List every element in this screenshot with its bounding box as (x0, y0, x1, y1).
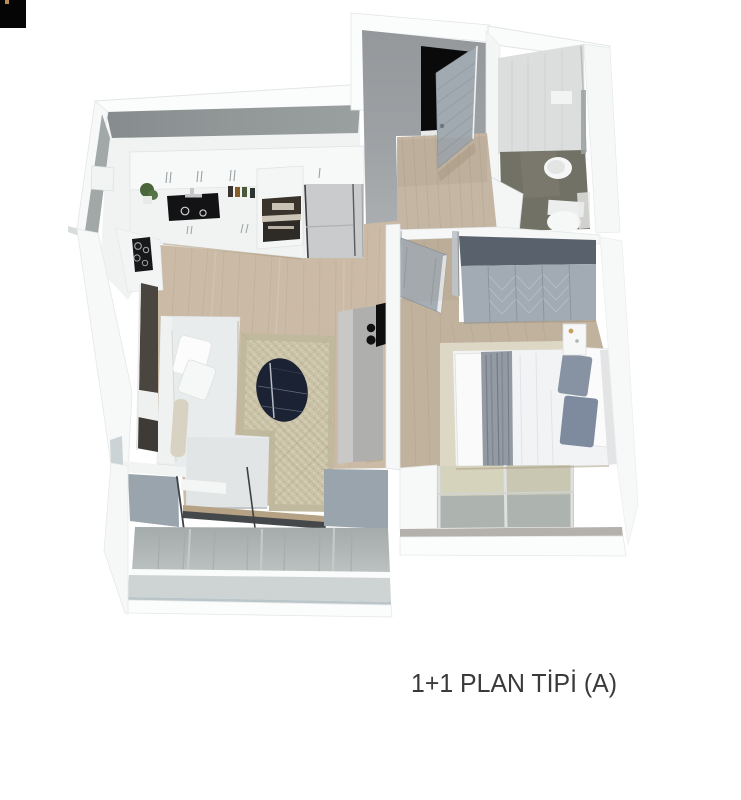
svg-text:1+1 PLAN TİPİ (A): 1+1 PLAN TİPİ (A) (411, 668, 617, 698)
